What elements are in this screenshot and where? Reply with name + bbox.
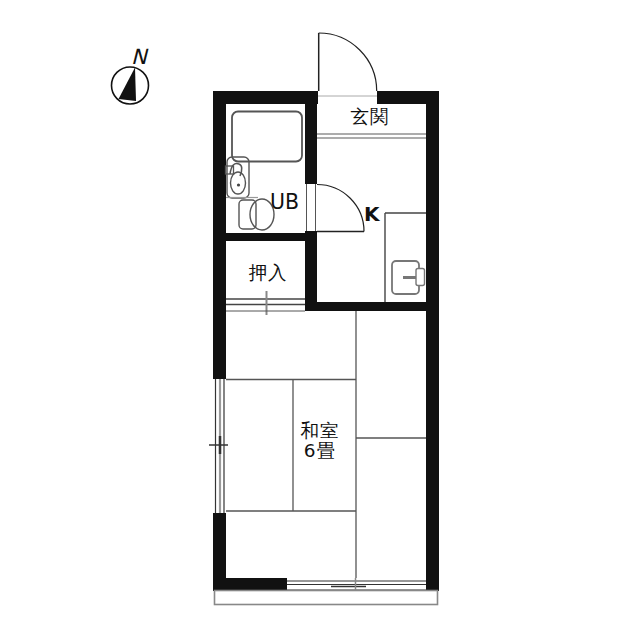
- balcony-outline: [215, 591, 438, 605]
- wall-top-left: [213, 91, 318, 104]
- unit-bath-label: UB: [270, 190, 299, 214]
- walls: [213, 91, 439, 591]
- kitchen-door-swing-arc: [317, 185, 364, 232]
- floorplan-canvas: N: [0, 0, 640, 640]
- wall-kitchen-south: [305, 302, 439, 311]
- genkan-step: [317, 134, 426, 138]
- entrance-door: [318, 33, 377, 96]
- left-window: [209, 379, 228, 513]
- wall-bottom-left: [213, 578, 287, 591]
- washitsu-size-label: 6畳: [304, 440, 336, 461]
- bathtub-icon: [232, 112, 302, 162]
- washbasin-bowl-icon: [231, 172, 246, 194]
- kitchen-door: [307, 184, 365, 232]
- kitchen-label: K: [364, 202, 381, 226]
- washitsu-label: 和室: [301, 420, 340, 441]
- washbasin-drain-icon: [237, 183, 240, 186]
- floorplan-drawing: N: [0, 0, 640, 640]
- kitchen-faucet-base-icon: [416, 269, 425, 286]
- entrance-door-swing-arc: [319, 33, 377, 91]
- wall-closet-top: [213, 233, 317, 241]
- genkan-label: 玄関: [351, 106, 390, 127]
- wall-ub-genkan-lower: [305, 231, 317, 311]
- compass: N: [112, 45, 150, 104]
- compass-needle-icon: [119, 68, 137, 102]
- wall-right: [426, 91, 439, 591]
- closet-label: 押入: [249, 262, 288, 283]
- kitchen-fixtures: [385, 213, 426, 302]
- wall-ub-genkan-upper: [305, 91, 317, 184]
- compass-north-label: N: [131, 45, 149, 69]
